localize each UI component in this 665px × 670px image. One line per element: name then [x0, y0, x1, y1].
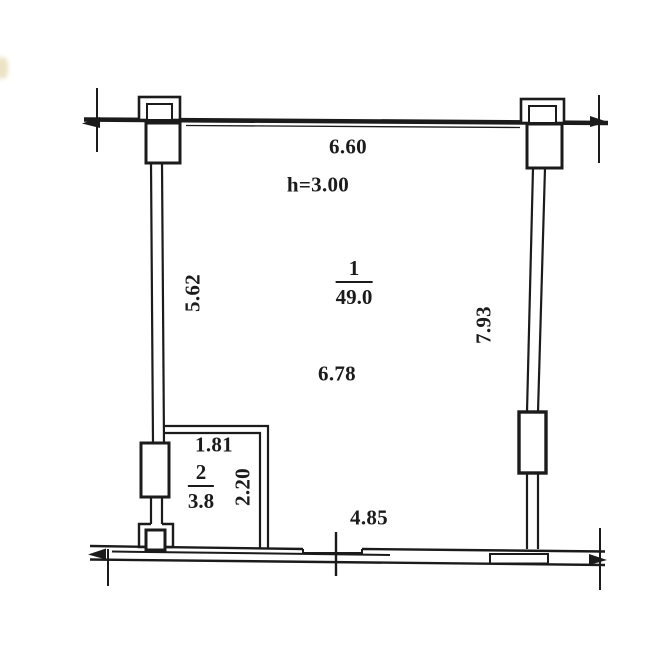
room2-label: 2 3.8	[188, 461, 214, 512]
dim-ceiling-height: h=3.00	[287, 173, 349, 198]
dim-room2-width: 1.81	[195, 433, 233, 458]
left-pilaster-bottom	[139, 443, 173, 550]
left-pilaster-base	[146, 530, 165, 550]
dim-top-width: 6.60	[329, 135, 367, 160]
room1-label: 1 49.0	[336, 257, 373, 308]
left-wall	[151, 163, 164, 443]
bottom-arrow-right	[589, 554, 607, 565]
bottom-arrow-left	[88, 549, 106, 560]
right-pilaster-top	[521, 99, 564, 168]
bottom-wall-notch	[490, 554, 548, 564]
dim-right-wall: 7.93	[472, 306, 497, 344]
room2-number: 2	[188, 461, 214, 487]
dim-bottom-width: 4.85	[350, 506, 388, 531]
right-wall	[519, 168, 546, 549]
room2-area: 3.8	[188, 487, 214, 512]
dim-room1-width: 6.78	[318, 362, 356, 387]
floor-plan: 6.60 h=3.00 1 49.0 6.78 5.62 7.93 1.81 2…	[0, 0, 665, 670]
right-pilaster-middle	[519, 412, 546, 473]
dim-left-wall: 5.62	[181, 274, 206, 312]
dim-room2-depth: 2.20	[231, 468, 256, 506]
room1-area: 49.0	[336, 283, 373, 308]
bottom-door-recess	[303, 549, 362, 553]
left-pilaster-top	[139, 97, 180, 163]
room1-number: 1	[336, 257, 373, 283]
plan-linework	[0, 0, 665, 670]
